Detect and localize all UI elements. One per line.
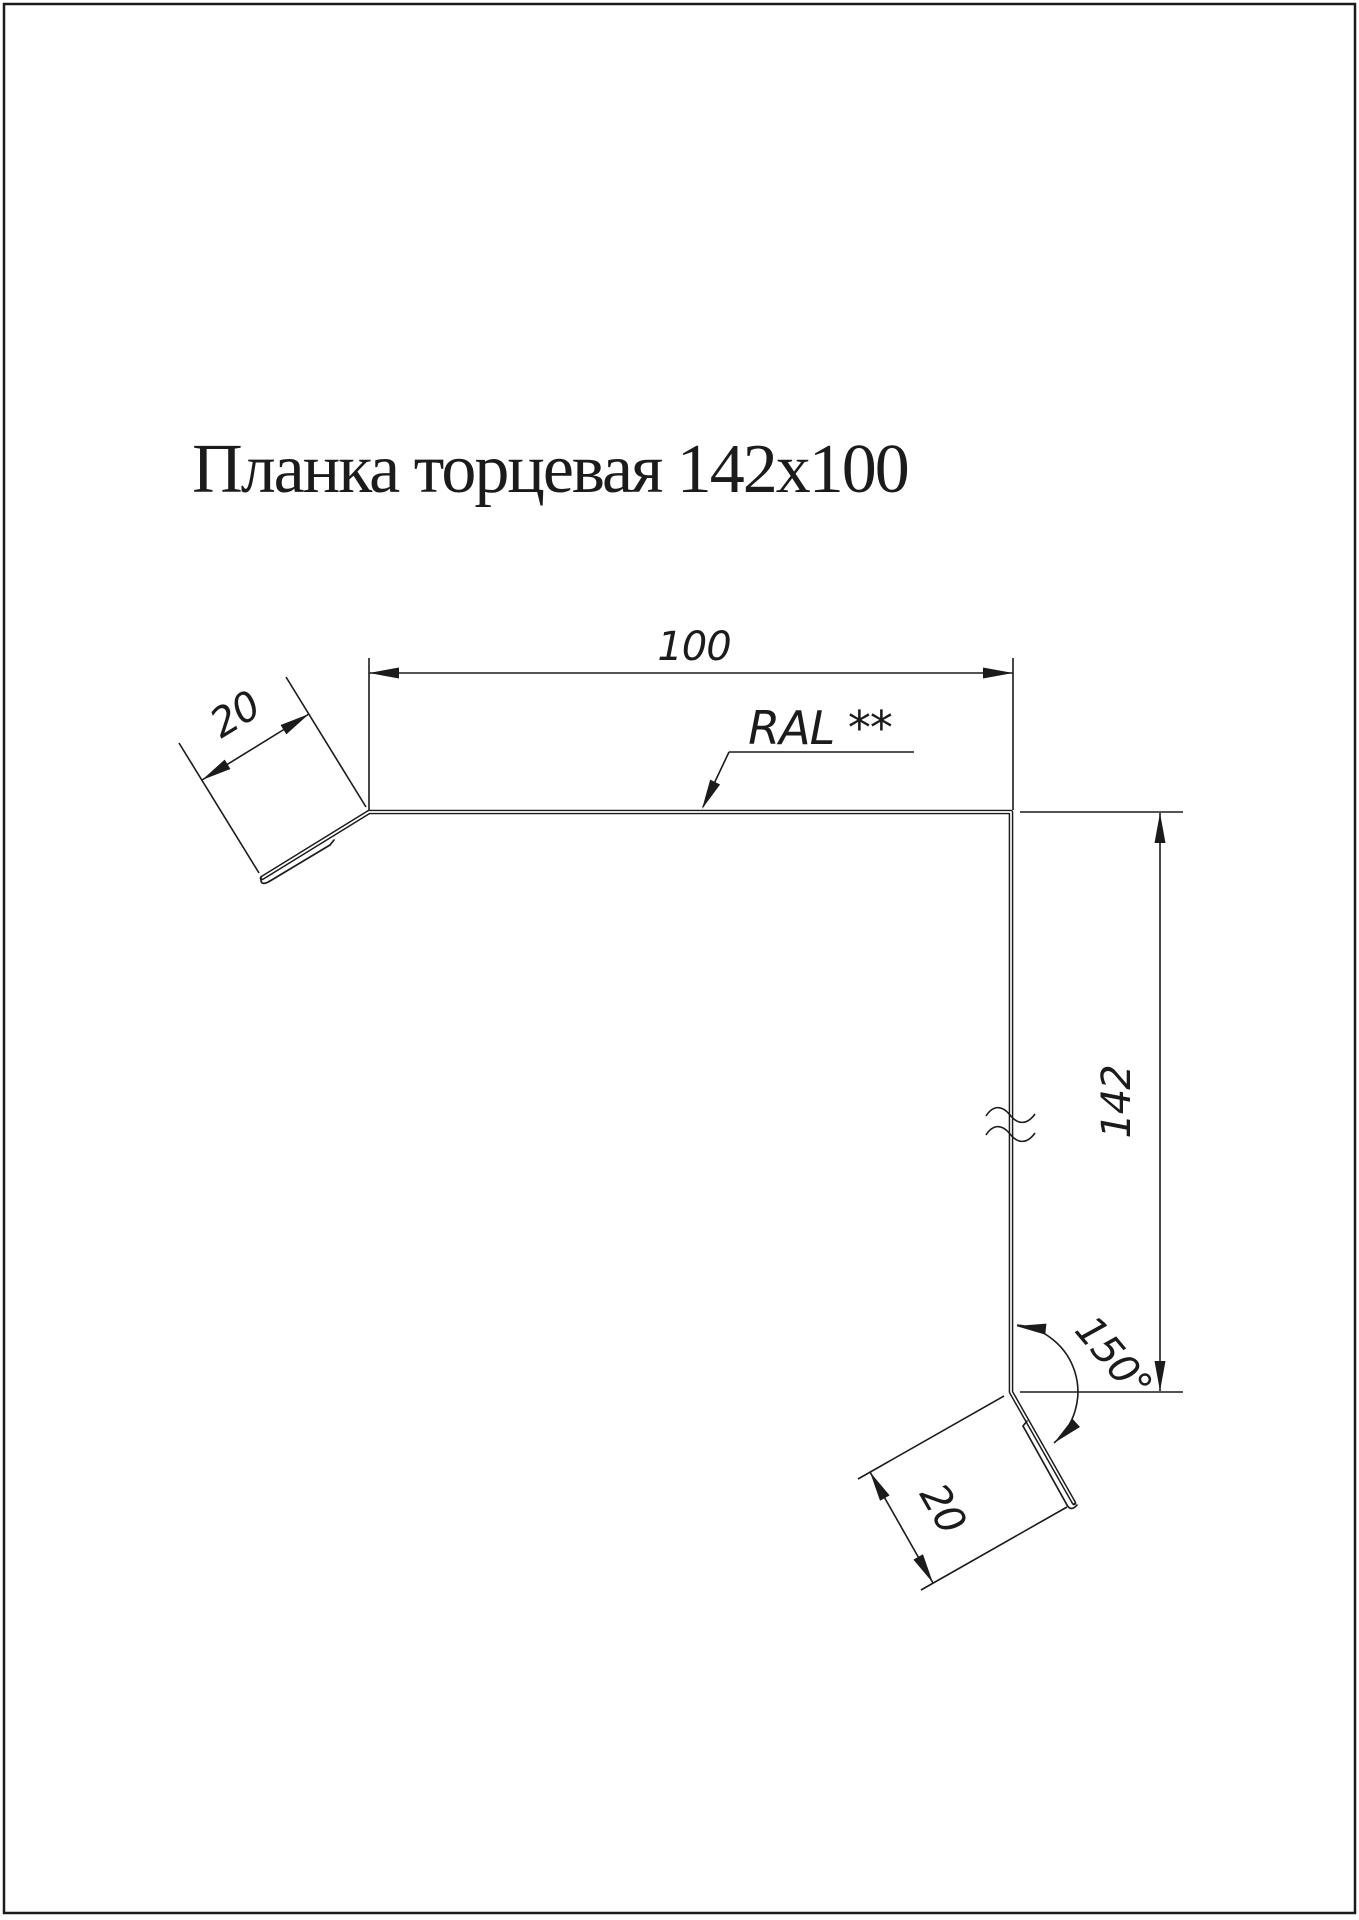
dim-label-20-top: 20 [202, 683, 268, 748]
dimension-arrowhead [1155, 813, 1166, 843]
technical-drawing: 100 RAL ** 142 150° 20 20 [0, 0, 1359, 1920]
ral-label: RAL ** [748, 701, 892, 755]
dimension-arrowhead [983, 668, 1013, 679]
extension-line [286, 677, 366, 807]
dimension-arrowhead [865, 1469, 889, 1501]
drawing-page: Планка торцевая 142x100 100 RAL ** [0, 0, 1359, 1920]
dimension-arrowhead [913, 1554, 937, 1586]
dimension-arrowhead [281, 709, 312, 734]
dimension-arrowhead [697, 780, 720, 812]
dimension-arrowhead [369, 668, 399, 679]
profile-hem-top [270, 845, 330, 881]
extension-line [858, 1396, 1004, 1479]
profile-hem-top-step [330, 840, 334, 845]
dimension-arrowhead [1015, 1321, 1046, 1335]
page-border [4, 4, 1355, 1913]
dim-label-20-bottom: 20 [910, 1476, 974, 1541]
profile-core-line [262, 812, 1074, 1503]
profile-outline [262, 812, 1074, 1503]
dim-label-100: 100 [657, 624, 730, 670]
dim-label-142: 142 [1094, 1065, 1140, 1138]
profile-hem-bottom-tip [1067, 1505, 1077, 1509]
dimension-arrowhead [199, 760, 230, 785]
extension-line [179, 743, 259, 873]
